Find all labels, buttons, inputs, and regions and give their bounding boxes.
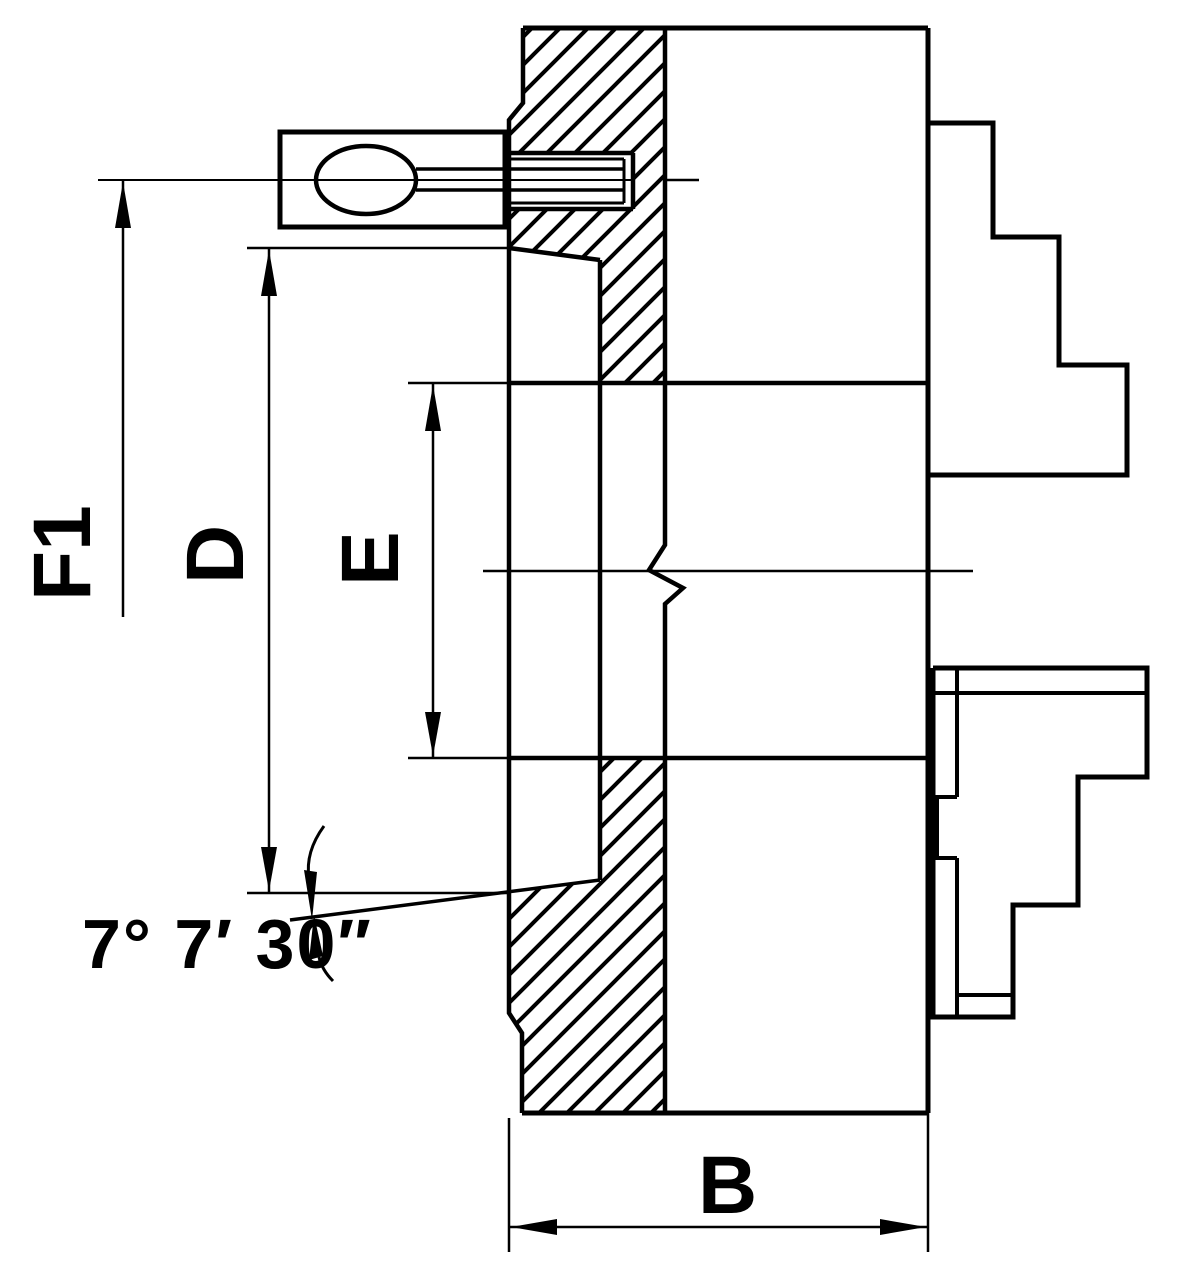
label-e: E [325, 531, 416, 586]
label-d: D [170, 525, 261, 584]
top-jaw-stepped-profile [928, 123, 1127, 475]
b-arrowhead-left [511, 1219, 557, 1235]
d-arrowhead-bottom [261, 847, 277, 891]
label-b: B [698, 1140, 757, 1231]
f1-arrowhead [115, 182, 131, 228]
dimension-f1 [115, 180, 131, 617]
label-taper-angle: 7° 7′ 30″ [82, 905, 373, 983]
angle-arc-upper-tail [308, 826, 324, 878]
bottom-jaw-assembly [933, 668, 1147, 1017]
bottom-jaw-outer-profile [933, 668, 1147, 1017]
d-arrowhead-top [261, 250, 277, 296]
bottom-jaw-notch [937, 797, 957, 858]
technical-drawing-canvas: F1 D E B 7° 7′ 30″ [0, 0, 1182, 1280]
e-arrowhead-bottom [425, 712, 441, 756]
chuck-section-drawing: F1 D E B 7° 7′ 30″ [0, 0, 1182, 1280]
flange-lower-section [509, 758, 665, 1113]
e-arrowhead-top [425, 385, 441, 431]
b-arrowhead-right [880, 1219, 926, 1235]
label-f1: F1 [17, 505, 108, 601]
